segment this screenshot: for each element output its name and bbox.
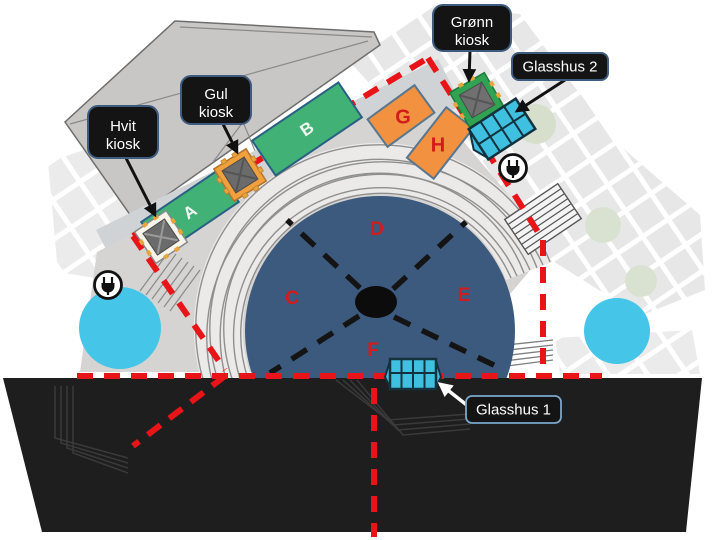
hvit-kiosk-callout: Hvit kiosk (88, 106, 158, 158)
glasshus1-marker (385, 359, 441, 389)
hvit-kiosk-callout-line2: kiosk (106, 136, 141, 153)
tree-circle-left (79, 287, 161, 369)
glasshus1-callout-label: Glasshus 1 (476, 401, 551, 418)
glasshus1-callout: Glasshus 1 (466, 396, 561, 423)
arena-hub (355, 286, 397, 318)
glasshus2-callout-label: Glasshus 2 (522, 58, 597, 75)
tree-circle-right (584, 298, 650, 364)
zone-label-h: H (431, 134, 445, 156)
foliage-circle (585, 207, 621, 243)
stage-area (3, 378, 702, 532)
site-map-canvas: C D E F A B G (0, 0, 720, 540)
gronn-kiosk-callout-line2: kiosk (455, 32, 490, 49)
power-plug-icon (95, 272, 122, 299)
gronn-kiosk-arrow (469, 51, 470, 80)
site-map: C D E F A B G (0, 0, 720, 540)
hvit-kiosk-callout-line1: Hvit (110, 118, 137, 135)
power-plug-icon (500, 155, 527, 182)
glasshus2-callout: Glasshus 2 (512, 53, 608, 80)
zone-label-d: D (370, 219, 384, 240)
gul-kiosk-callout: Gul kiosk (181, 76, 251, 124)
gronn-kiosk-callout-line1: Grønn (451, 14, 494, 31)
zone-label-e: E (458, 285, 471, 306)
gul-kiosk-callout-line1: Gul (204, 86, 227, 103)
gul-kiosk-callout-line2: kiosk (199, 104, 234, 121)
zone-label-c: C (285, 288, 299, 309)
gronn-kiosk-callout: Grønn kiosk (433, 5, 511, 51)
foliage-circle (625, 265, 657, 297)
zone-label-f: F (367, 340, 379, 361)
zone-label-g: G (395, 106, 411, 128)
